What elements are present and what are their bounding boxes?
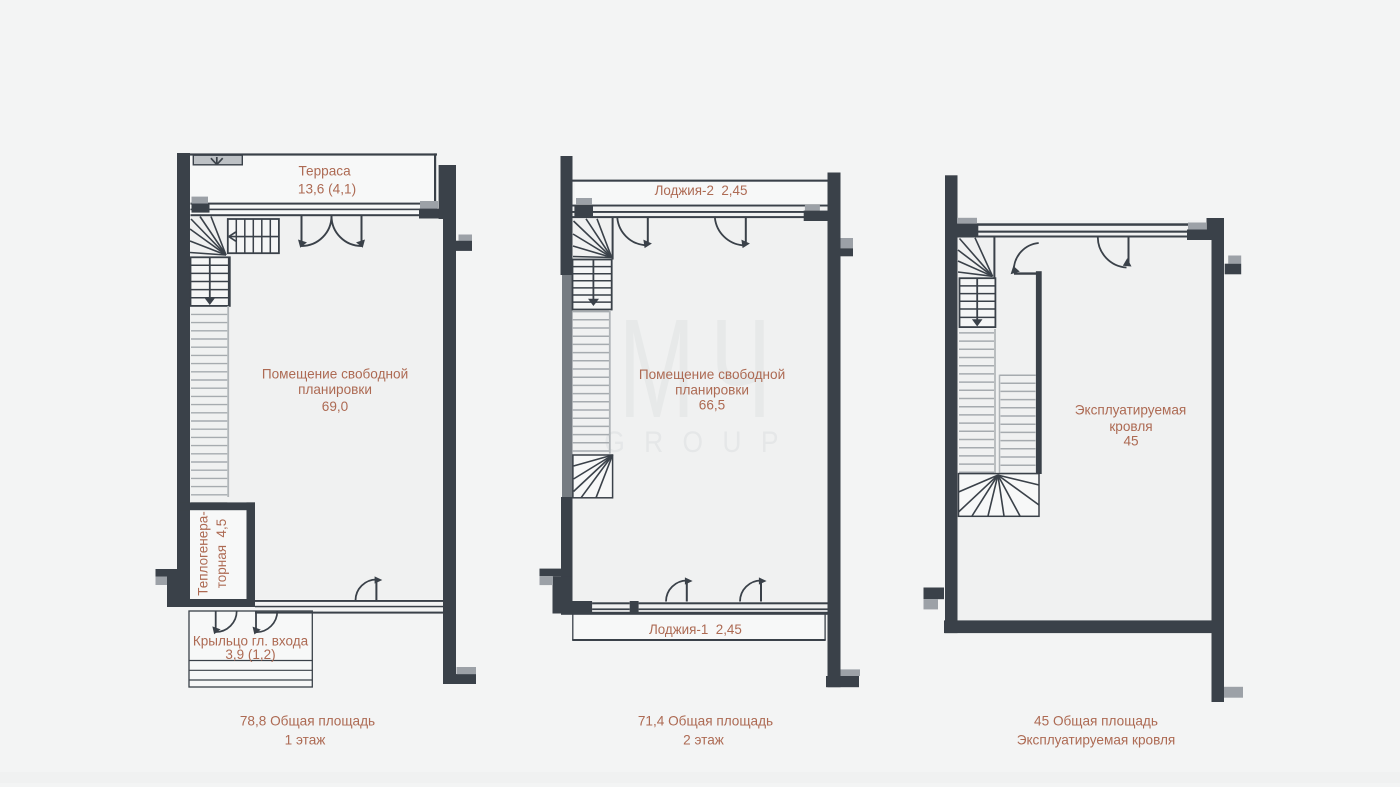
svg-text:кровля: кровля [1109,419,1152,434]
svg-text:69,0: 69,0 [322,399,349,414]
svg-text:Эксплуатируемая кровля: Эксплуатируемая кровля [1017,733,1176,748]
svg-text:Эксплуатируемая: Эксплуатируемая [1075,403,1187,418]
svg-text:45 Общая площадь: 45 Общая площадь [1034,714,1158,729]
svg-text:3,9 (1,2): 3,9 (1,2) [225,647,275,662]
svg-text:66,5: 66,5 [699,397,725,412]
svg-text:45: 45 [1123,434,1138,449]
svg-text:торная 4,5: торная 4,5 [214,519,229,589]
svg-text:планировки: планировки [675,382,749,397]
svg-text:Помещение свободной: Помещение свободной [262,366,408,381]
svg-text:GROUP: GROUP [604,424,798,458]
svg-text:Терраса: Терраса [299,164,352,179]
svg-text:Лоджия-1 2,45: Лоджия-1 2,45 [649,622,742,637]
svg-text:планировки: планировки [298,382,372,397]
svg-text:2 этаж: 2 этаж [683,733,725,748]
svg-text:Лоджия-2 2,45: Лоджия-2 2,45 [655,183,748,198]
svg-text:1 этаж: 1 этаж [285,733,327,748]
svg-text:78,8 Общая площадь: 78,8 Общая площадь [240,714,375,729]
svg-text:Помещение свободной: Помещение свободной [639,367,785,382]
svg-text:71,4 Общая площадь: 71,4 Общая площадь [638,714,773,729]
svg-text:13,6 (4,1): 13,6 (4,1) [298,181,356,196]
svg-text:Теплогенера-: Теплогенера- [196,511,211,595]
